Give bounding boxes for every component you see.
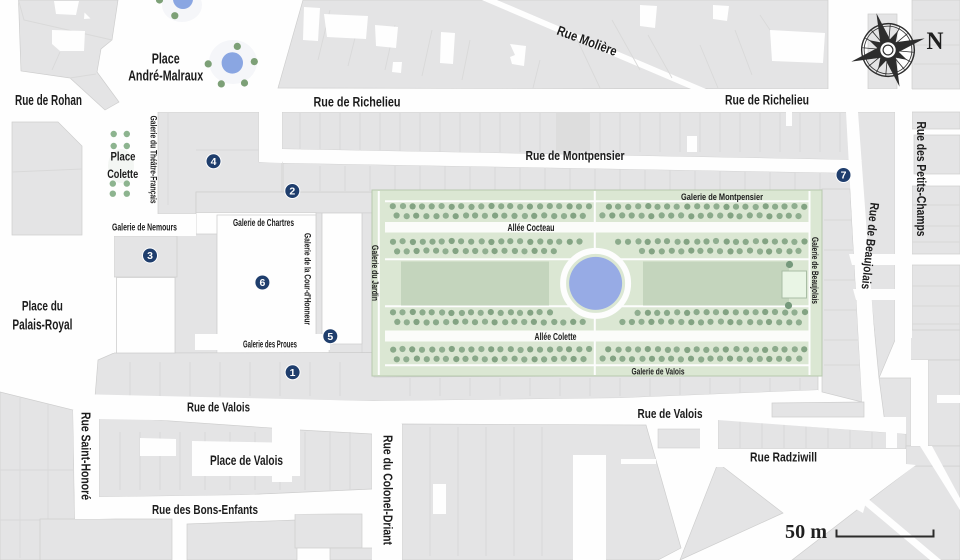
svg-text:Galerie de Valois: Galerie de Valois <box>632 366 685 377</box>
svg-text:Rue Saint-Honoré: Rue Saint-Honoré <box>79 412 94 500</box>
svg-text:Rue de Richelieu: Rue de Richelieu <box>725 92 809 107</box>
svg-text:Galerie du Jardin: Galerie du Jardin <box>369 245 380 301</box>
svg-text:Allée Cocteau: Allée Cocteau <box>508 223 555 234</box>
svg-text:Galerie des Proues: Galerie des Proues <box>243 339 297 350</box>
svg-text:Rue de Richelieu: Rue de Richelieu <box>314 94 401 109</box>
svg-text:Galerie du Théâtre-Français: Galerie du Théâtre-Français <box>148 116 159 204</box>
svg-text:Colette: Colette <box>107 169 138 181</box>
svg-text:Place: Place <box>152 52 180 68</box>
svg-text:Rue Radziwill: Rue Radziwill <box>750 450 817 464</box>
svg-text:1: 1 <box>290 367 296 379</box>
svg-text:Palais-Royal: Palais-Royal <box>12 318 72 334</box>
svg-text:André-Malraux: André-Malraux <box>128 68 203 84</box>
svg-text:N: N <box>927 28 944 55</box>
svg-text:Place de Valois: Place de Valois <box>210 452 283 468</box>
svg-text:Rue de Valois: Rue de Valois <box>187 400 250 414</box>
svg-text:Galerie de Nemours: Galerie de Nemours <box>112 222 177 233</box>
svg-text:Place du: Place du <box>22 298 63 314</box>
svg-text:5: 5 <box>327 331 333 343</box>
svg-text:Galerie de Chartres: Galerie de Chartres <box>233 218 294 229</box>
svg-text:Place: Place <box>111 151 136 163</box>
svg-text:Galerie de Beaujolais: Galerie de Beaujolais <box>809 237 820 304</box>
svg-text:7: 7 <box>841 170 847 182</box>
svg-text:Rue du Colonel-Driant: Rue du Colonel-Driant <box>381 435 395 546</box>
svg-text:Rue de Rohan: Rue de Rohan <box>15 93 82 109</box>
svg-text:4: 4 <box>211 156 217 168</box>
svg-text:Galerie de Montpensier: Galerie de Montpensier <box>681 192 763 203</box>
svg-text:Galerie de la Cour-d'Honneur: Galerie de la Cour-d'Honneur <box>302 233 313 325</box>
svg-text:2: 2 <box>289 186 295 198</box>
svg-text:Rue des Bons-Enfants: Rue des Bons-Enfants <box>152 502 258 517</box>
svg-text:Rue de Valois: Rue de Valois <box>638 407 703 421</box>
svg-text:6: 6 <box>259 277 265 289</box>
svg-text:Rue de Montpensier: Rue de Montpensier <box>526 148 625 163</box>
svg-text:3: 3 <box>147 250 153 262</box>
svg-text:50 m: 50 m <box>785 521 827 543</box>
svg-text:Allée Colette: Allée Colette <box>535 332 577 343</box>
svg-text:Rue des Petits-Champs: Rue des Petits-Champs <box>914 122 929 237</box>
